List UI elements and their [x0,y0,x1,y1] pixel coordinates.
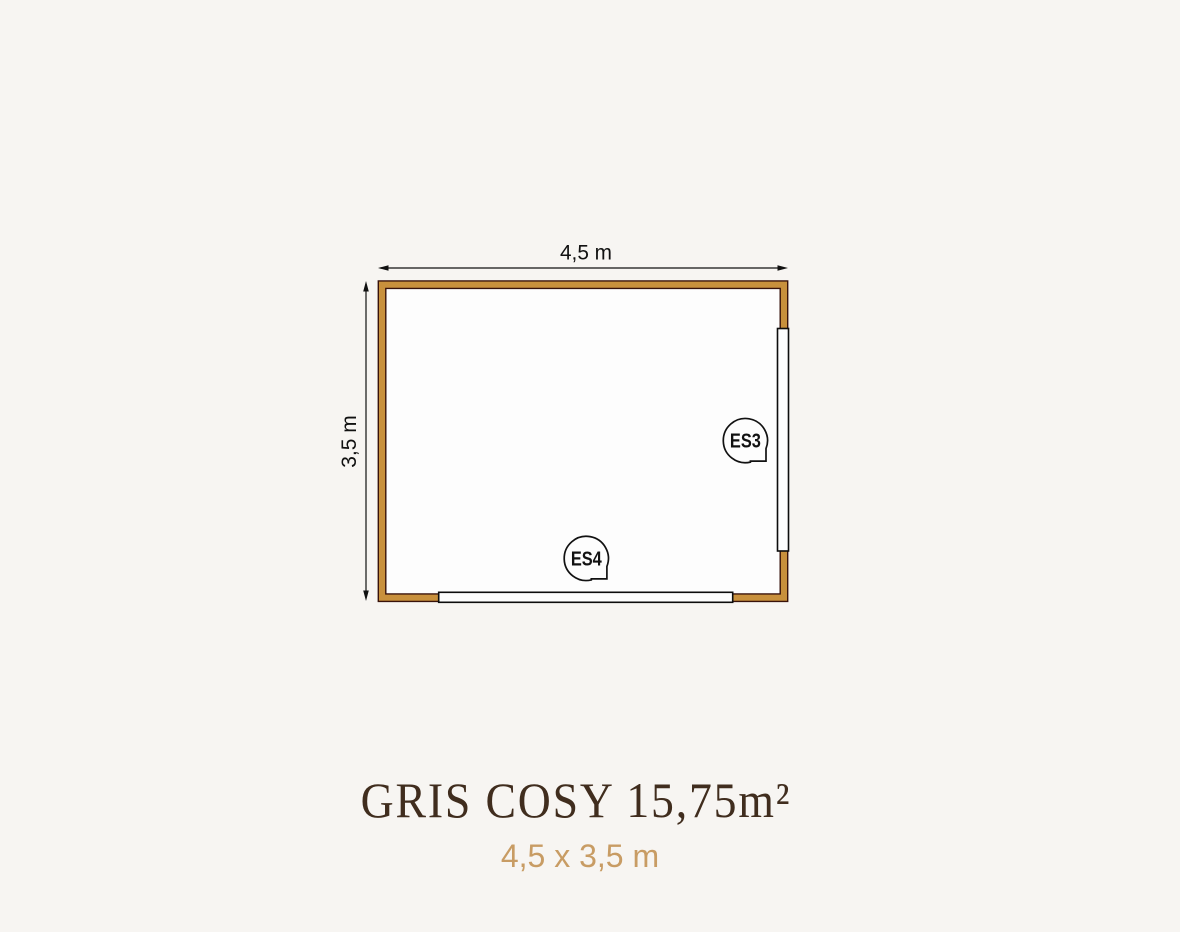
svg-text:4,5 x 3,5 m: 4,5 x 3,5 m [501,838,659,874]
svg-text:4,5 m: 4,5 m [560,242,612,265]
svg-text:3,5 m: 3,5 m [338,415,361,468]
svg-text:ES4: ES4 [571,547,603,570]
svg-text:GRIS COSY 15,75m²: GRIS COSY 15,75m² [361,773,792,828]
svg-text:ES3: ES3 [730,429,761,452]
